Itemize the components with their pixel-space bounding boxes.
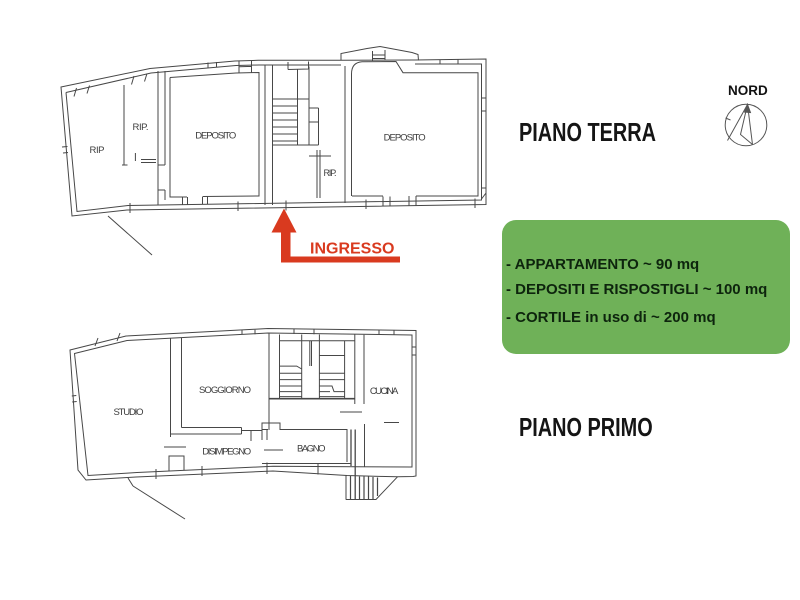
svg-text:DEPOSITO: DEPOSITO <box>384 133 426 144</box>
svg-text:SOGGIORNO: SOGGIORNO <box>199 385 251 396</box>
svg-text:STUDIO: STUDIO <box>114 407 144 418</box>
svg-text:RIP: RIP <box>90 145 105 156</box>
svg-text:INGRESSO: INGRESSO <box>310 241 394 258</box>
svg-text:NORD: NORD <box>728 83 768 98</box>
svg-text:DISIMPEGNO: DISIMPEGNO <box>202 447 251 458</box>
svg-text:DEPOSITO: DEPOSITO <box>195 131 236 142</box>
svg-text:RIP.: RIP. <box>324 168 337 178</box>
svg-text:BAGNO: BAGNO <box>297 444 326 455</box>
svg-text:RIP.: RIP. <box>133 122 149 133</box>
svg-text:CUCINA: CUCINA <box>370 386 399 397</box>
